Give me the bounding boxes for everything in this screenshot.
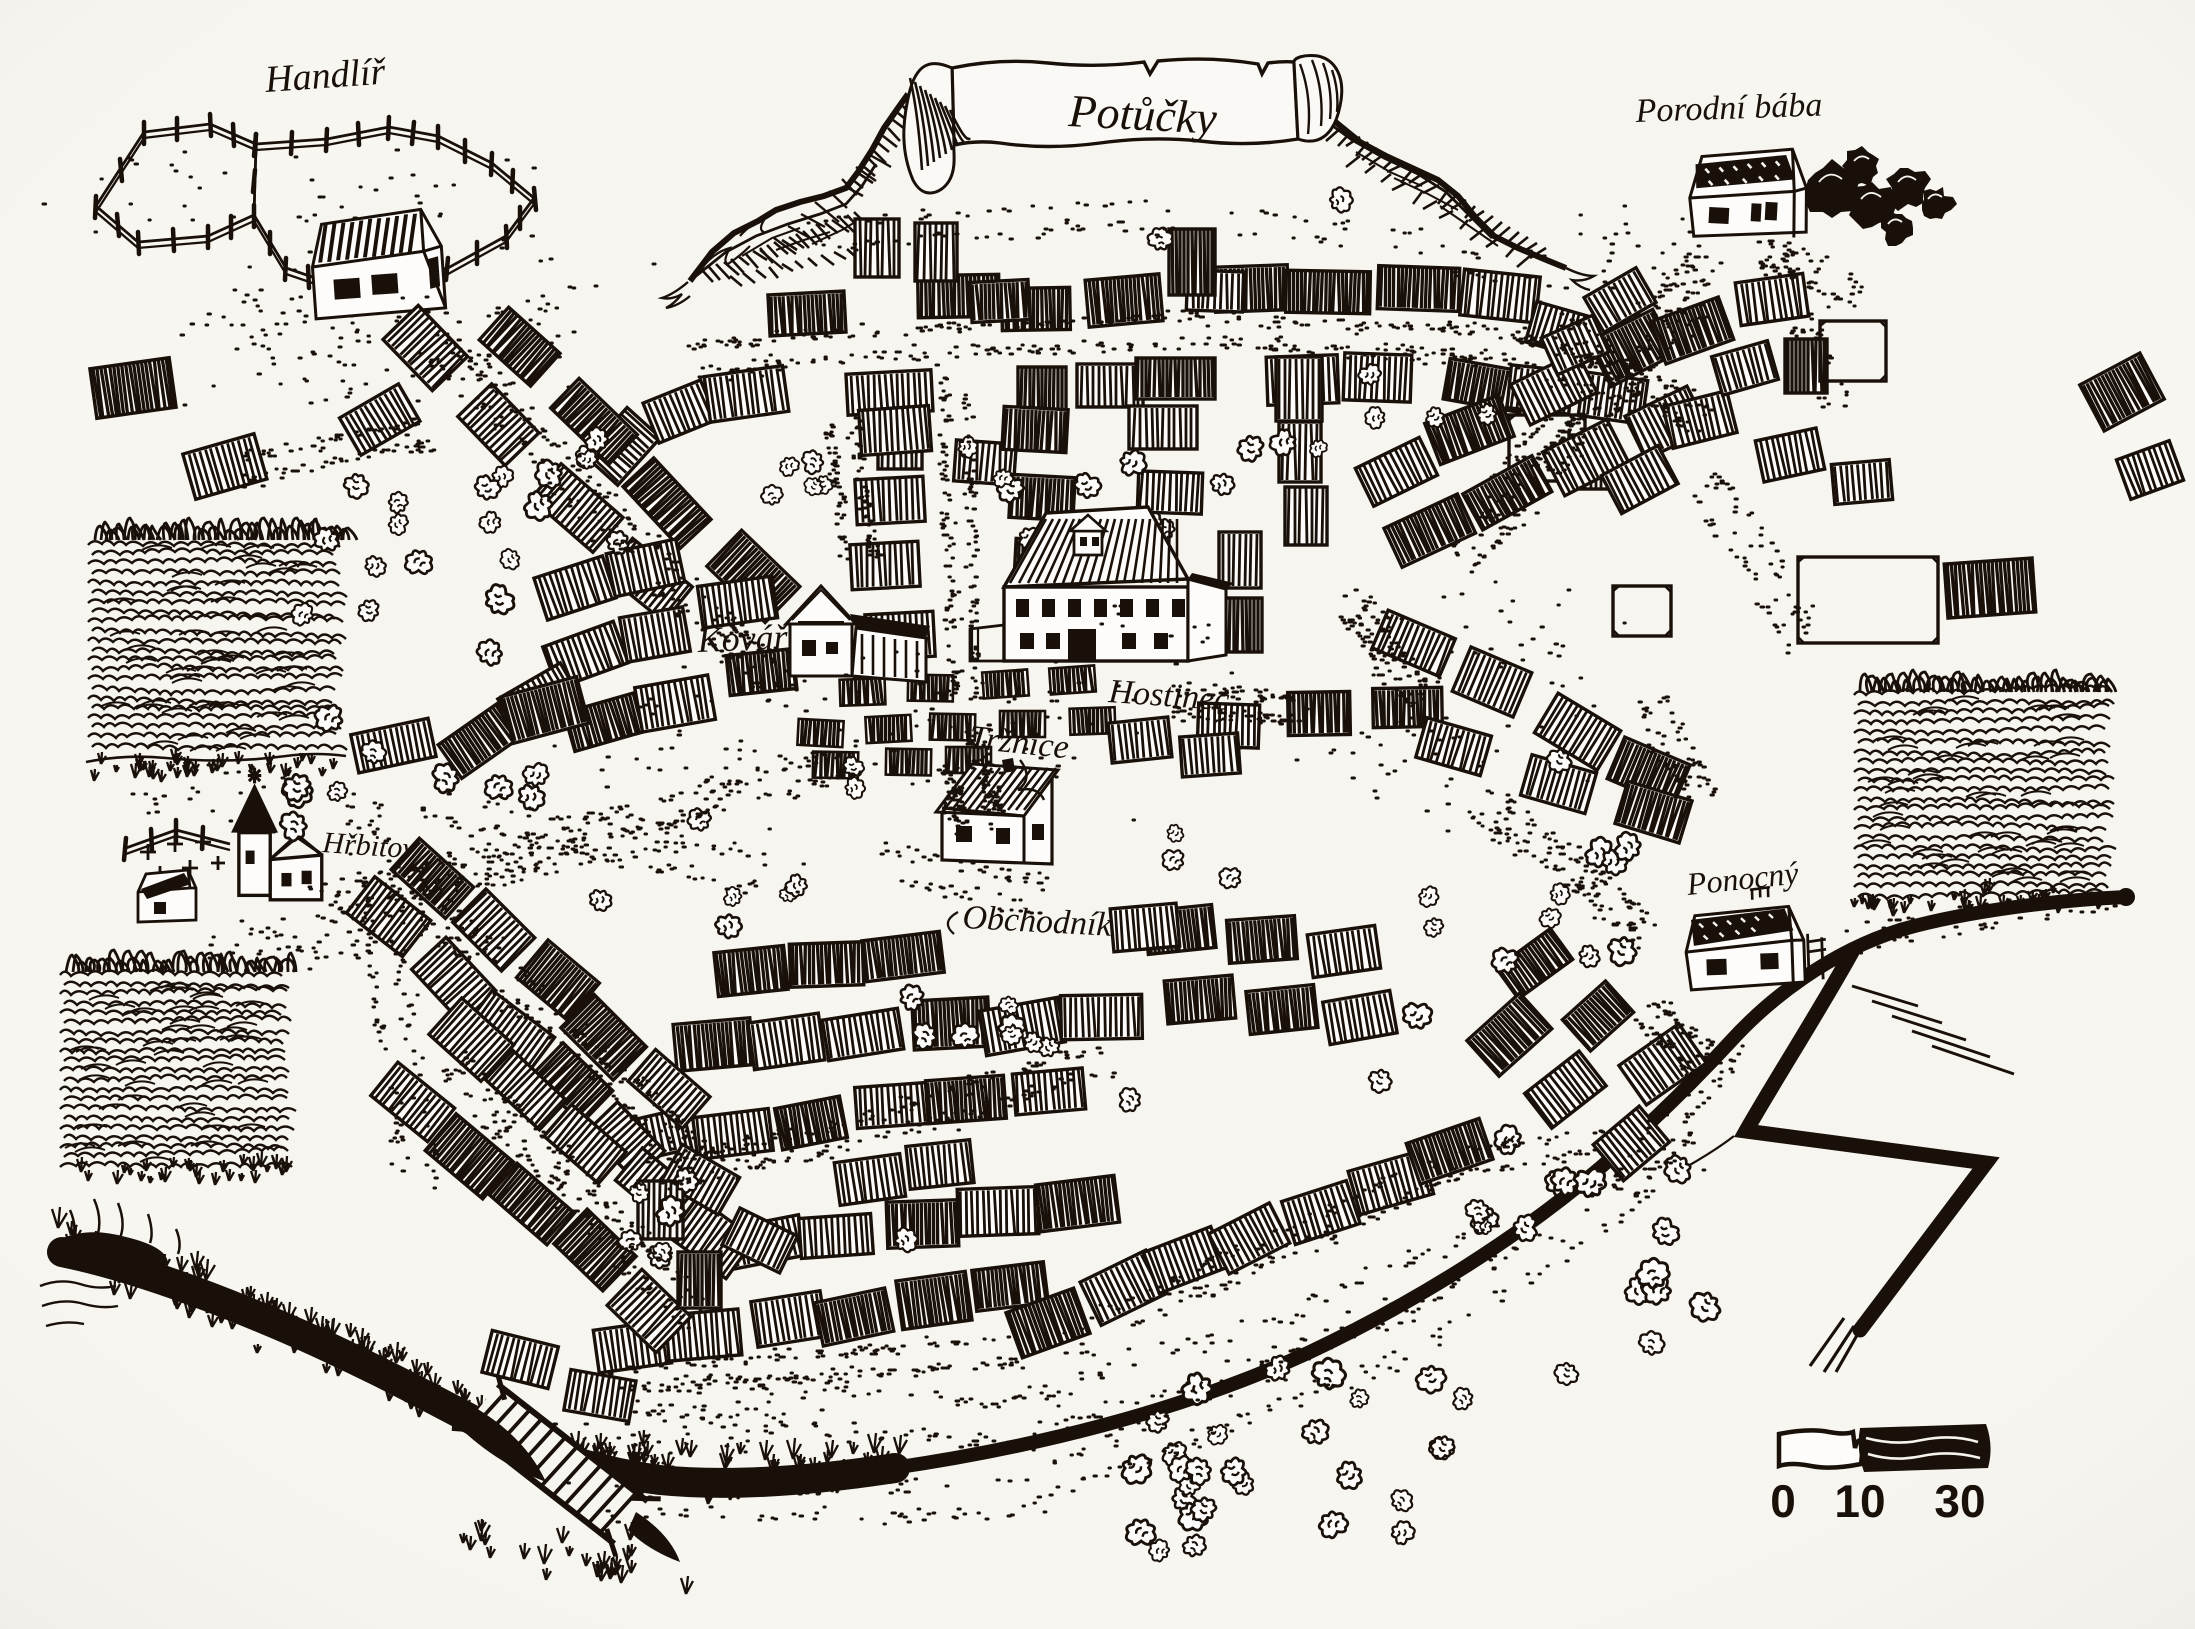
svg-text:30: 30 <box>1934 1475 1985 1527</box>
svg-text:10: 10 <box>1834 1475 1885 1527</box>
svg-text:Hřbitov: Hřbitov <box>321 826 418 866</box>
svg-text:Potůčky: Potůčky <box>1066 85 1218 144</box>
svg-text:Kovář: Kovář <box>696 617 790 660</box>
svg-text:0: 0 <box>1770 1475 1796 1527</box>
svg-text:Porodní bába: Porodní bába <box>1634 87 1823 131</box>
svg-text:Obchodník: Obchodník <box>962 899 1114 944</box>
svg-text:Handlíř: Handlíř <box>263 51 388 101</box>
